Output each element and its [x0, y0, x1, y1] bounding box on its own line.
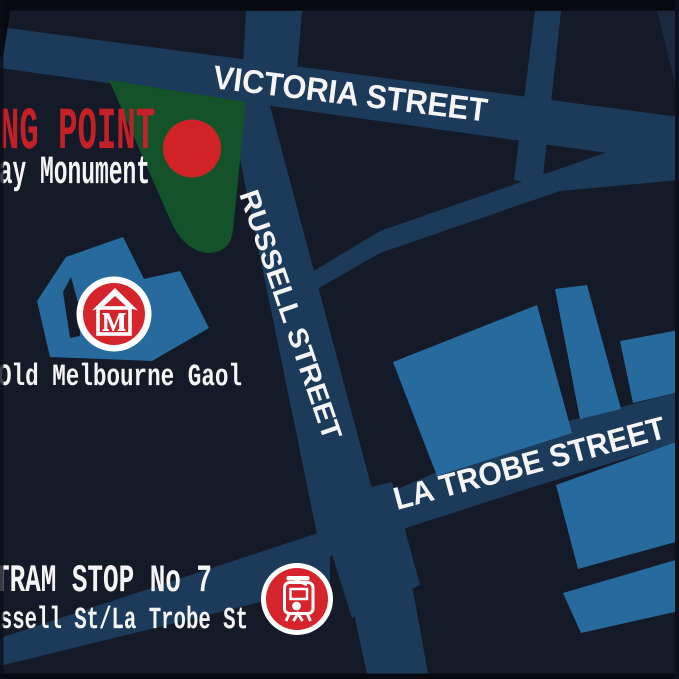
svg-text:Day Monument: Day Monument — [0, 151, 150, 196]
svg-text:Old Melbourne Gaol: Old Melbourne Gaol — [0, 360, 242, 395]
svg-text:TRAM STOP No 7: TRAM STOP No 7 — [0, 559, 212, 603]
svg-text:Russell St/La Trobe St: Russell St/La Trobe St — [0, 603, 248, 638]
